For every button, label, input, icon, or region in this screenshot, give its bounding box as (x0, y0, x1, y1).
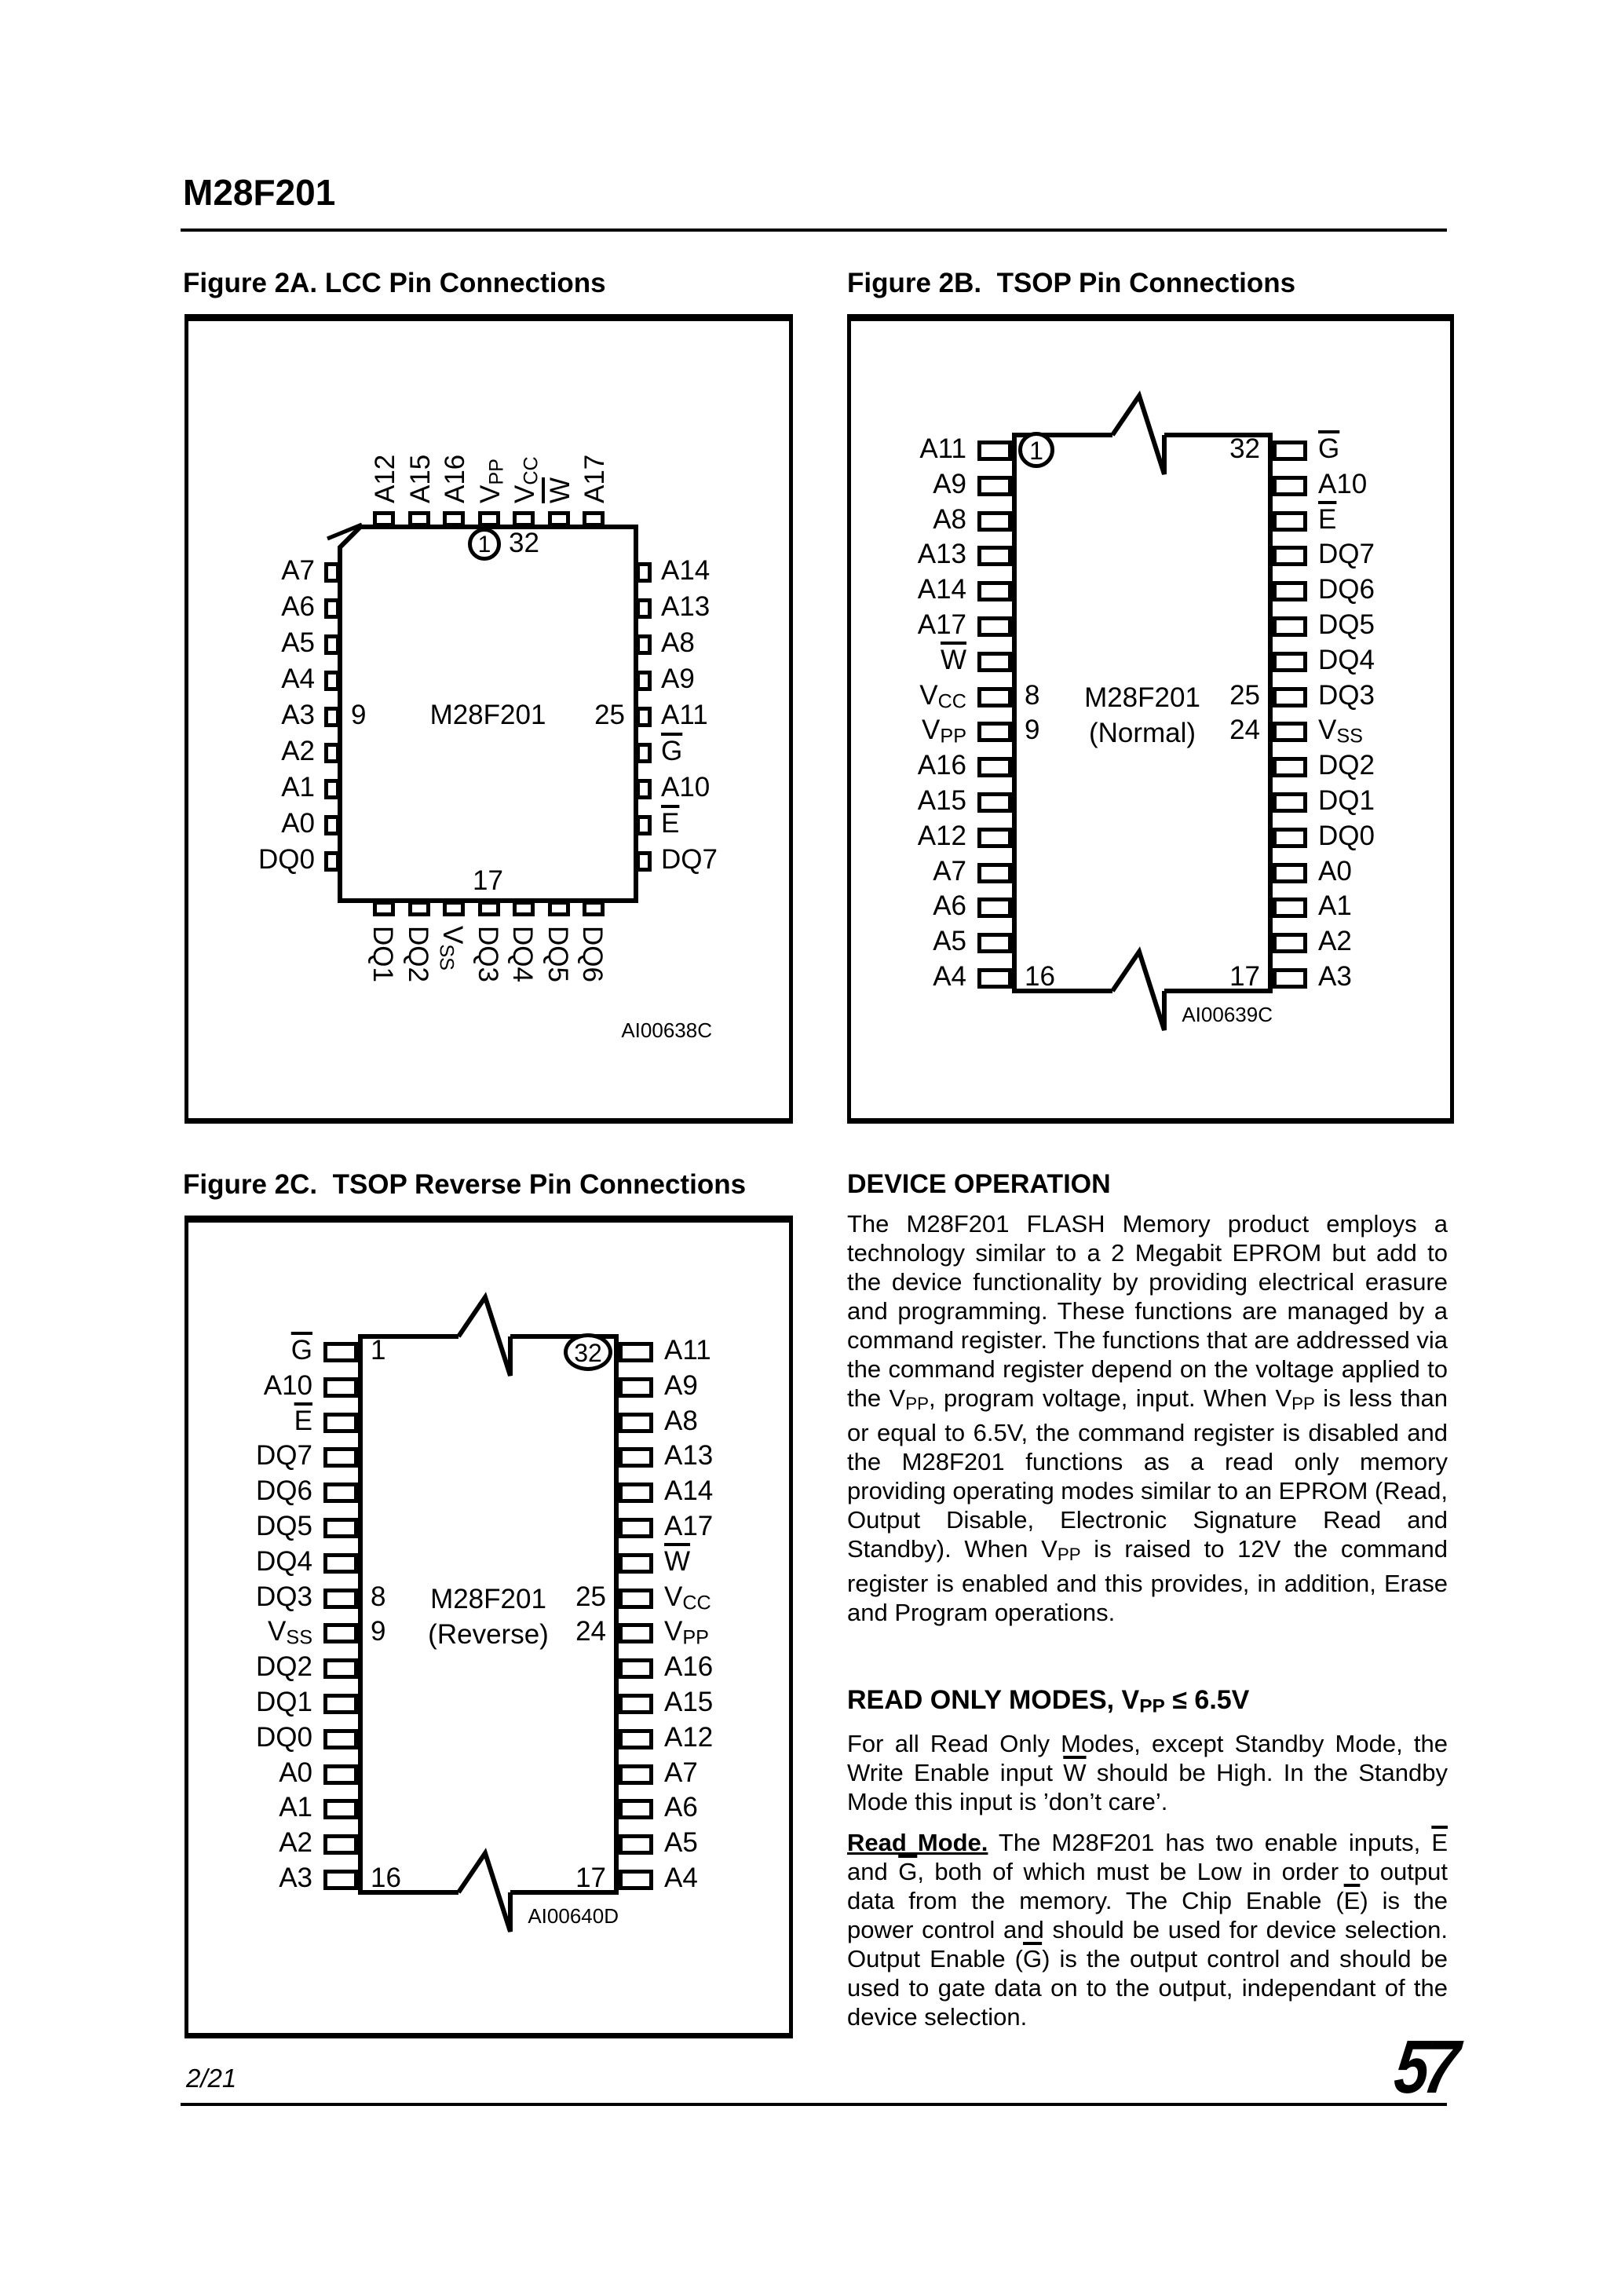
text-segment: The M28F201 FLASH Memory product employs… (847, 1210, 1448, 1412)
pin (323, 1694, 358, 1714)
overlined-signal: G (898, 1858, 917, 1885)
pin (619, 1658, 653, 1679)
pin-label-text: DQ5 (1318, 609, 1375, 640)
page-number: 2/21 (186, 2064, 236, 2093)
text-segment: READ ONLY MODES, V (847, 1685, 1139, 1715)
lcc-diagram: A12A15A16VPPVCCWA17DQ1DQ2VSSDQ3DQ4DQ5DQ6… (188, 321, 789, 1118)
pin-label: VPP (476, 459, 508, 503)
pin-label: DQ0 (1318, 821, 1375, 852)
overlined-signal: G (1023, 1945, 1042, 1972)
pin-label-text: E (661, 808, 679, 839)
pin (323, 1589, 358, 1609)
pin (1273, 722, 1307, 742)
pin (619, 1729, 653, 1749)
overlined-signal: E (1344, 1887, 1361, 1914)
pin-number: 17 (340, 866, 636, 897)
pin-label-text: DQ6 (1318, 574, 1375, 605)
pin-label-text: A2 (281, 736, 315, 766)
pin-label-text: A14 (664, 1475, 713, 1506)
pin-label: A16 (440, 455, 471, 503)
pin-label-text: DQ6 (256, 1475, 312, 1506)
pin (1273, 652, 1307, 672)
pin-number: 17 (1171, 962, 1260, 993)
pin (636, 815, 652, 835)
pin-label: A9 (851, 470, 966, 500)
pin (443, 511, 465, 527)
pin (636, 743, 652, 763)
pin-label: DQ1 (188, 1687, 312, 1718)
pin-label-text: DQ0 (258, 844, 315, 875)
read-only-modes-heading: READ ONLY MODES, VPP ≤ 6.5V (847, 1685, 1249, 1717)
pin-label-text: A0 (281, 808, 315, 839)
pin (478, 901, 500, 916)
pin (619, 1553, 653, 1574)
pin-label-text: DQ6 (577, 926, 608, 982)
pin (977, 863, 1012, 883)
pin-label: DQ3 (472, 926, 502, 982)
pin-label-text: A17 (579, 455, 610, 503)
pin-label-text: A16 (440, 455, 470, 503)
pin-label-text: VCC (510, 456, 540, 503)
pin (323, 1377, 358, 1398)
pin-number: 16 (371, 1863, 401, 1894)
pin-label-text: W (941, 645, 966, 675)
pin-label-text: A13 (664, 1440, 713, 1471)
pin1-circle: 1 (1018, 432, 1054, 468)
pin (324, 671, 340, 691)
pin (583, 511, 605, 527)
pin-label: A17 (580, 455, 611, 503)
pin-label-text: W (664, 1546, 690, 1577)
pin-label-text: A12 (370, 455, 400, 503)
pin-label-text: W (545, 477, 575, 503)
figure-code: AI00640D (415, 1904, 619, 1929)
pin-label: DQ4 (1318, 645, 1375, 676)
header-rule (181, 229, 1447, 232)
pin-label: DQ5 (188, 1512, 312, 1542)
subscript: PP (1058, 1545, 1081, 1564)
chip-orientation: (Reverse) (358, 1617, 619, 1652)
figure-code: AI00638C (524, 1018, 712, 1043)
pin-label: A12 (664, 1723, 713, 1753)
pin (619, 1799, 653, 1819)
pin (324, 779, 340, 799)
pin-label: A14 (851, 575, 966, 605)
pin-label-text: DQ1 (256, 1687, 312, 1717)
pin-label-text: VSS (268, 1616, 312, 1647)
pin-label: A1 (204, 773, 315, 803)
pin (323, 1413, 358, 1433)
pin-label-text: G (661, 736, 682, 766)
pin (977, 581, 1012, 601)
pin-label-text: VPP (664, 1616, 709, 1647)
pin-label-text: VPP (475, 459, 506, 503)
pin-label: VSS (1318, 715, 1363, 748)
pin-label: W (664, 1547, 690, 1578)
subscript: PP (1139, 1695, 1165, 1717)
pin-label: A16 (851, 751, 966, 781)
pin-label-text: A11 (661, 700, 708, 730)
pin-number: 1 (371, 1336, 385, 1366)
pin (977, 968, 1012, 989)
pin (323, 1342, 358, 1362)
pin-label-text: A15 (664, 1687, 713, 1717)
pin (977, 511, 1012, 532)
pin (636, 598, 652, 619)
pin-label: DQ2 (402, 926, 433, 982)
pin-label: A14 (664, 1476, 713, 1507)
text-segment: The M28F201 has two enable inputs, (988, 1829, 1431, 1856)
pin-label-text: A14 (661, 555, 710, 586)
pin-label-text: DQ7 (1318, 539, 1375, 569)
pin-label: DQ3 (188, 1582, 312, 1613)
pin-label-text: DQ2 (403, 926, 433, 982)
pin-label-text: A9 (664, 1370, 698, 1401)
pin (513, 901, 535, 916)
break-mark-icon (457, 1293, 520, 1381)
pin-label: A8 (664, 1406, 698, 1437)
pin-label-text: G (1318, 433, 1339, 464)
pin-label: A3 (1318, 962, 1352, 993)
pin (323, 1729, 358, 1749)
pin-label: A9 (661, 664, 695, 695)
pin-label-text: A3 (1318, 961, 1352, 992)
pin-label: A4 (851, 962, 966, 993)
pin-label-text: A12 (664, 1722, 713, 1753)
pin-label-text: A15 (405, 455, 436, 503)
pin-label-text: E (1318, 504, 1336, 535)
pin-label: A8 (661, 628, 695, 659)
pin-label-text: A10 (264, 1370, 312, 1401)
pin-label-text: DQ1 (1318, 785, 1375, 816)
pin-label: A17 (851, 610, 966, 641)
pin (323, 1518, 358, 1538)
pin (1273, 511, 1307, 532)
pin-label: DQ7 (661, 845, 718, 876)
pin-label: DQ0 (204, 845, 315, 876)
pin (1273, 546, 1307, 566)
pin (619, 1764, 653, 1785)
pin (373, 511, 395, 527)
pin-label: VPP (664, 1617, 709, 1649)
break-mark-icon (1111, 392, 1174, 480)
pin-label-text: A16 (918, 750, 966, 781)
pin (373, 901, 395, 916)
pin (619, 1377, 653, 1398)
pin-label-text: A5 (933, 926, 966, 956)
pin (1273, 687, 1307, 707)
pin1-circle: 32 (564, 1333, 612, 1371)
pin (619, 1518, 653, 1538)
pin-label-text: G (291, 1335, 312, 1366)
pin-label: A5 (204, 628, 315, 659)
pin (408, 901, 430, 916)
pin-label: A0 (188, 1758, 312, 1789)
pin-label-text: VCC (919, 680, 966, 711)
pin-label: A5 (851, 927, 966, 957)
pin (323, 1623, 358, 1643)
pin-label: A3 (204, 700, 315, 731)
pin-label: A2 (1318, 927, 1352, 957)
pin (323, 1799, 358, 1819)
pin-label: A13 (661, 592, 710, 623)
pin (1273, 757, 1307, 777)
pin-label: A14 (661, 556, 710, 587)
pin-label-text: A11 (919, 433, 966, 464)
pin (977, 687, 1012, 707)
pin-label: A0 (1318, 857, 1352, 887)
pin1-circle: 1 (468, 528, 501, 561)
pin (619, 1870, 653, 1890)
pin (1273, 476, 1307, 496)
pin-label-text: A8 (661, 627, 695, 658)
st-logo-icon: 57 (1391, 2030, 1458, 2105)
pin-label: DQ6 (1318, 575, 1375, 605)
pin-label: A13 (664, 1441, 713, 1472)
page-title: M28F201 (183, 171, 335, 214)
pin-label: A17 (664, 1512, 713, 1542)
pin-label-text: A1 (281, 772, 315, 803)
pin-label: DQ5 (542, 926, 572, 982)
pin (324, 634, 340, 655)
pin-label-text: DQ0 (1318, 821, 1375, 851)
pin (323, 1447, 358, 1468)
pin-label-text: DQ4 (507, 926, 538, 982)
pin-label: DQ6 (188, 1476, 312, 1507)
pin-label-text: A1 (279, 1792, 312, 1823)
pin-label: A15 (851, 786, 966, 817)
pin-label: A6 (204, 592, 315, 623)
pin-label-text: A6 (933, 890, 966, 921)
pin-label-text: A10 (661, 772, 710, 803)
pin-label: DQ4 (507, 926, 538, 982)
pin (977, 546, 1012, 566)
overlined-signal: W (1063, 1759, 1086, 1786)
pin-label-text: DQ5 (542, 926, 573, 982)
pin-label: VPP (851, 715, 966, 748)
pin-label: G (661, 737, 682, 767)
pin-label: VSS (435, 926, 467, 971)
pin (513, 511, 535, 527)
pin-label-text: DQ2 (256, 1651, 312, 1682)
pin-label-text: A5 (664, 1827, 698, 1858)
pin-number: 17 (517, 1863, 606, 1894)
text-segment: , program voltage, input. When V (929, 1384, 1291, 1412)
pin (1273, 441, 1307, 461)
pin-label: A4 (204, 664, 315, 695)
pin-label: A2 (204, 737, 315, 767)
pin (977, 476, 1012, 496)
pin (1273, 863, 1307, 883)
pin (323, 1658, 358, 1679)
pin-label-text: A9 (933, 469, 966, 499)
pin-label: A3 (188, 1863, 312, 1894)
pin (619, 1447, 653, 1468)
pin (1273, 933, 1307, 953)
pin (636, 634, 652, 655)
pin-label-text: A17 (664, 1511, 713, 1541)
pin-label-text: A12 (918, 821, 966, 851)
datasheet-page: M28F201 Figure 2A. LCC Pin Connections F… (0, 0, 1622, 2296)
figure-2c-box: GA10EDQ7DQ6DQ5DQ4DQ3VSSDQ2DQ1DQ0A0A1A2A3… (184, 1216, 793, 2038)
pin-label: VCC (664, 1582, 711, 1614)
chip-name: M28F201 (358, 1581, 619, 1617)
figure-2a-box: A12A15A16VPPVCCWA17DQ1DQ2VSSDQ3DQ4DQ5DQ6… (184, 314, 793, 1124)
pin (323, 1834, 358, 1855)
pin-label-text: A2 (1318, 926, 1352, 956)
pin (636, 562, 652, 583)
pin-label: A11 (661, 700, 708, 731)
pin-label: W (851, 645, 966, 676)
pin-label: A15 (406, 455, 437, 503)
figure-2b-title: Figure 2B. TSOP Pin Connections (847, 268, 1295, 299)
pin (636, 707, 652, 727)
pin-label: A7 (204, 556, 315, 587)
pin-label: DQ4 (188, 1547, 312, 1578)
text-segment: and (847, 1858, 898, 1885)
pin (619, 1483, 653, 1503)
pin-label-text: A11 (664, 1335, 711, 1366)
pin (323, 1553, 358, 1574)
pin-label: G (1318, 434, 1339, 465)
pin (323, 1870, 358, 1890)
pin-number: 16 (1025, 962, 1055, 993)
pin-label-text: DQ5 (256, 1511, 312, 1541)
pin-label-text: DQ7 (256, 1440, 312, 1471)
pin-label-text: A5 (281, 627, 315, 658)
pin (583, 901, 605, 916)
chip-label: M28F201(Normal) (1012, 680, 1273, 751)
pin-label-text: A7 (664, 1757, 698, 1788)
pin (636, 779, 652, 799)
pin-label: A7 (851, 857, 966, 887)
pin-label-text: A3 (281, 700, 315, 730)
figure-2c-title: Figure 2C. TSOP Reverse Pin Connections (183, 1169, 746, 1201)
pin-label: A1 (1318, 891, 1352, 922)
pin (1273, 828, 1307, 848)
pin (977, 722, 1012, 742)
pin (324, 707, 340, 727)
subscript: PP (905, 1394, 929, 1413)
pin-label: A7 (664, 1758, 698, 1789)
pin-label-text: DQ2 (1318, 750, 1375, 781)
pin (636, 671, 652, 691)
pin (619, 1694, 653, 1714)
pin-label-text: A4 (933, 961, 966, 992)
pin-label-text: DQ4 (256, 1546, 312, 1577)
pin-label: DQ2 (1318, 751, 1375, 781)
pin-label: VCC (510, 456, 542, 503)
pin-label-text: DQ3 (1318, 680, 1375, 711)
pin-label: E (188, 1406, 312, 1437)
pin (977, 652, 1012, 672)
pin-label-text: A2 (279, 1827, 312, 1858)
pin-label: A15 (664, 1687, 713, 1718)
pin (324, 598, 340, 619)
figure-2a-title: Figure 2A. LCC Pin Connections (183, 268, 606, 299)
pin (619, 1413, 653, 1433)
pin-label: DQ3 (1318, 681, 1375, 711)
chip-label: M28F201(Reverse) (358, 1581, 619, 1652)
pin-label-text: E (294, 1406, 312, 1436)
pin-label-text: VSS (1318, 715, 1363, 745)
pin (548, 511, 570, 527)
pin-label-text: A15 (918, 785, 966, 816)
pin-label-text: DQ4 (1318, 645, 1375, 675)
pin-label-text: DQ3 (473, 926, 503, 982)
pin (1273, 792, 1307, 813)
pin (323, 1483, 358, 1503)
pin-label-text: DQ0 (256, 1722, 312, 1753)
pin-label: A8 (851, 505, 966, 536)
pin-label-text: A16 (664, 1651, 713, 1682)
pin-label: A12 (851, 821, 966, 852)
pin-label: E (1318, 505, 1336, 536)
pin-label-text: DQ7 (661, 844, 718, 875)
pin-label-text: A8 (933, 504, 966, 535)
read-only-paragraph-1: For all Read Only Modes, except Standby … (847, 1729, 1448, 1816)
pin-label: A11 (664, 1336, 711, 1366)
read-only-paragraph-2: Read Mode. The M28F201 has two enable in… (847, 1828, 1448, 2031)
pin (977, 757, 1012, 777)
chip-label: M28F201 (340, 700, 636, 731)
pin-label: A11 (851, 434, 966, 465)
pin (977, 441, 1012, 461)
pin-label: VSS (188, 1617, 312, 1649)
pin (977, 898, 1012, 918)
pin-label-text: A8 (664, 1406, 698, 1436)
pin (408, 511, 430, 527)
pin-label-text: VCC (664, 1581, 711, 1612)
pin-label-text: A7 (281, 555, 315, 586)
pin (1273, 581, 1307, 601)
pin-label: DQ6 (577, 926, 608, 982)
pin (619, 1589, 653, 1609)
pin (478, 511, 500, 527)
footer-rule (181, 2103, 1447, 2106)
pin-label-text: DQ3 (256, 1581, 312, 1612)
pin-label-text: A9 (661, 664, 695, 694)
pin-label-text: A3 (279, 1863, 312, 1893)
pin (619, 1623, 653, 1643)
pin-label: A10 (661, 773, 710, 803)
pin-label: DQ2 (188, 1652, 312, 1683)
pin (1273, 898, 1307, 918)
pin (324, 851, 340, 872)
pin-label-text: DQ1 (367, 926, 398, 982)
pin-label: DQ7 (1318, 539, 1375, 570)
pin-label-text: A1 (1318, 890, 1352, 921)
pin (323, 1764, 358, 1785)
pin (977, 616, 1012, 637)
device-operation-heading: DEVICE OPERATION (847, 1169, 1111, 1200)
pin-label-text: A7 (933, 856, 966, 887)
tsop-reverse-diagram: GA10EDQ7DQ6DQ5DQ4DQ3VSSDQ2DQ1DQ0A0A1A2A3… (188, 1223, 789, 2033)
pin-label: A6 (851, 891, 966, 922)
subscript: PP (1291, 1394, 1315, 1413)
pin-label: DQ7 (188, 1441, 312, 1472)
pin-label: A4 (664, 1863, 698, 1894)
figure-code: AI00639C (1069, 1003, 1273, 1027)
overlined-signal: E (1431, 1829, 1448, 1856)
pin (977, 933, 1012, 953)
text-segment: ≤ 6.5V (1165, 1685, 1250, 1715)
pin (1273, 968, 1307, 989)
pin-label-text: A13 (918, 539, 966, 569)
pin-label-text: VSS (437, 926, 468, 971)
pin-label-text: A6 (281, 591, 315, 622)
pin-label: G (188, 1336, 312, 1366)
